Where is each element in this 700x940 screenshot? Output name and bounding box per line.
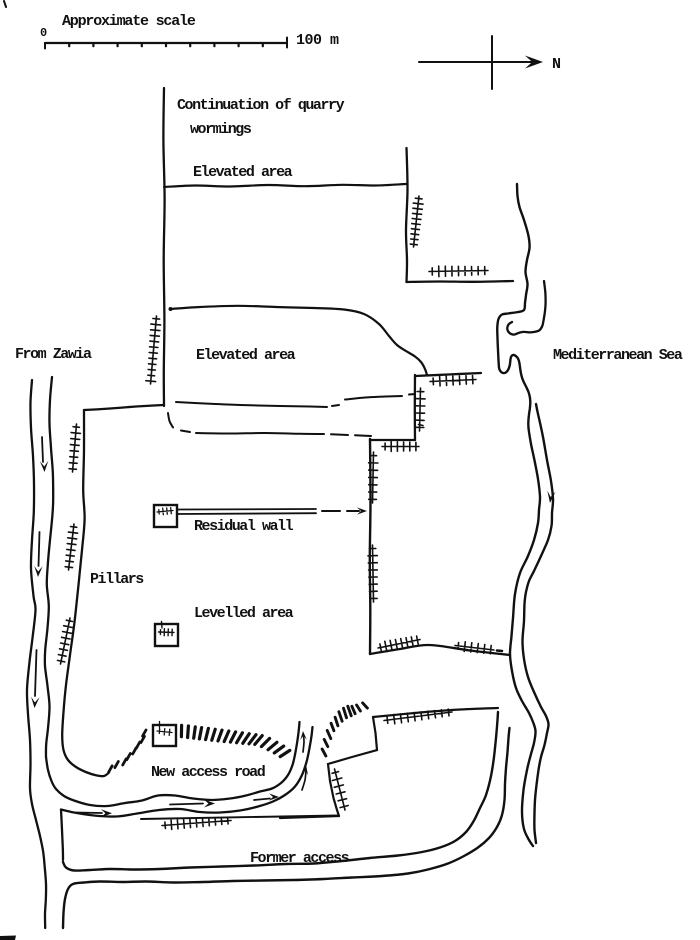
svg-text:0: 0 <box>40 26 47 40</box>
svg-text:Elevated area: Elevated area <box>193 164 293 181</box>
svg-text:Continuation of quarry: Continuation of quarry <box>177 97 345 114</box>
svg-text:From Zawia: From Zawia <box>15 346 92 363</box>
svg-text:Approximate scale: Approximate scale <box>62 13 196 30</box>
svg-text:wormings: wormings <box>190 121 252 138</box>
svg-text:New access road: New access road <box>151 764 265 781</box>
svg-text:Residual wall: Residual wall <box>194 518 294 535</box>
svg-text:100 m: 100 m <box>296 32 339 49</box>
svg-text:Elevated area: Elevated area <box>196 347 296 364</box>
svg-text:Mediterranean Sea: Mediterranean Sea <box>553 347 683 364</box>
svg-text:Pillars: Pillars <box>90 571 144 588</box>
svg-text:N: N <box>552 56 561 73</box>
svg-text:Levelled area: Levelled area <box>194 605 294 622</box>
